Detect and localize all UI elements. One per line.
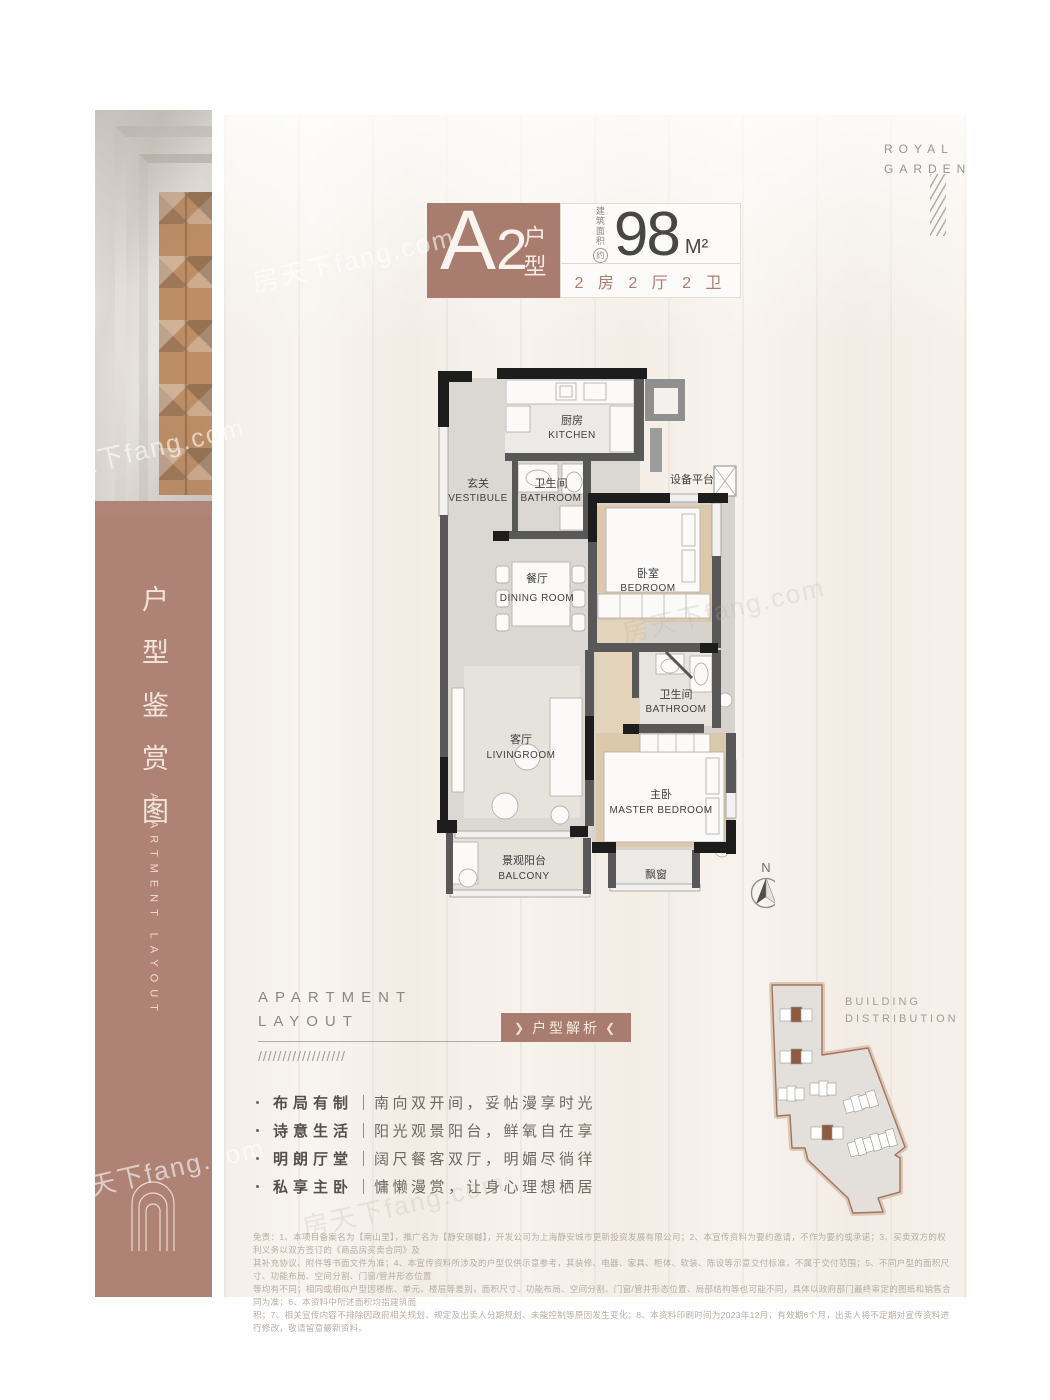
room-label-bath2-en: BATHROOM: [645, 704, 706, 715]
area-unit: M²: [685, 236, 708, 259]
building-distribution-title: BUILDING DISTRIBUTION: [845, 994, 959, 1028]
slash-decor: //////////////////: [258, 1048, 346, 1064]
section-heading: APARTMENT LAYOUT: [258, 986, 412, 1034]
section-badge: ❯ 户型解析 ❮: [501, 1013, 631, 1042]
svg-text:N: N: [761, 860, 770, 875]
room-label-master-en: MASTER BEDROOM: [609, 805, 712, 816]
room-label-bath2-zh: 卫生间: [660, 687, 693, 701]
room-label-kitchen-zh: 厨房: [561, 414, 583, 427]
feature-item: 诗意生活阳光观景阳台，鲜氧自在享: [256, 1116, 696, 1144]
room-label-vestibule-en: VESTIBULE: [448, 493, 508, 504]
room-label-living-en: LIVINGROOM: [487, 750, 556, 761]
chevron-left-icon: ❮: [605, 1021, 618, 1035]
room-label-bath1-en: BATHROOM: [520, 493, 581, 504]
room-label-bath1-zh: 卫生间: [535, 476, 568, 490]
approx-circle: 约: [593, 248, 608, 263]
unit-code-suffix: 户型: [519, 225, 546, 283]
chevron-right-icon: ❯: [514, 1021, 527, 1035]
unit-area-badge: 建 筑 面 积 约 98 M² 2 房 2 厅 2 卫: [560, 203, 741, 298]
room-label-dining-en: DINING ROOM: [500, 593, 574, 604]
room-label-bedroom-en: BEDROOM: [620, 583, 675, 594]
room-label-master-zh: 主卧: [650, 788, 672, 801]
room-label-kitchen-en: KITCHEN: [548, 430, 595, 441]
room-label-dining-zh: 餐厅: [526, 571, 548, 585]
room-label-balcony-zh: 景观阳台: [502, 853, 546, 867]
area-value: 98: [614, 205, 679, 265]
label-equipment: 设备平台: [670, 472, 714, 486]
area-label: 建 筑 面 积 约: [593, 206, 608, 263]
brand-logo: ROYAL GARDEN: [884, 139, 971, 179]
feature-item: 私享主卧慵懒漫赏，让身心理想栖居: [256, 1172, 696, 1200]
room-label-bedroom-zh: 卧室: [637, 566, 659, 580]
arch-icon: [128, 1175, 178, 1253]
floor-plan: 厨房 KITCHEN 玄关 VESTIBULE 卫生间 BATHROOM 设备平…: [425, 350, 775, 915]
unit-spec: 2 房 2 厅 2 卫: [561, 263, 740, 297]
brand-hatch-decor: [930, 174, 946, 236]
disclaimer: 免责：1、本项目备案名为【南山里】，推广名为【静安璟樾】，开发公司为上海静安城市…: [253, 1231, 953, 1335]
north-compass-icon: N: [752, 860, 776, 908]
feature-list: 布局有制南向双开间，妥帖漫享时光 诗意生活阳光观景阳台，鲜氧自在享 明朗厅堂阔尺…: [256, 1088, 696, 1200]
unit-code: A: [440, 193, 496, 287]
label-bay-window: 飘窗: [645, 867, 667, 881]
decor-doorframe-photo: [95, 110, 212, 515]
feature-item: 布局有制南向双开间，妥帖漫享时光: [256, 1088, 696, 1116]
sidebar-subtitle: APARTMENT LAYOUT: [148, 793, 160, 1018]
unit-code-badge: A2 户型: [427, 203, 560, 298]
sidebar-band: 户型鉴赏图 APARTMENT LAYOUT: [95, 515, 212, 1297]
room-label-balcony-en: BALCONY: [498, 871, 549, 882]
feature-item: 明朗厅堂阔尺餐客双厅，明媚尽徜徉: [256, 1144, 696, 1172]
room-label-vestibule-zh: 玄关: [467, 476, 489, 490]
heading-rule: [258, 1041, 501, 1042]
room-label-living-zh: 客厅: [510, 732, 532, 746]
